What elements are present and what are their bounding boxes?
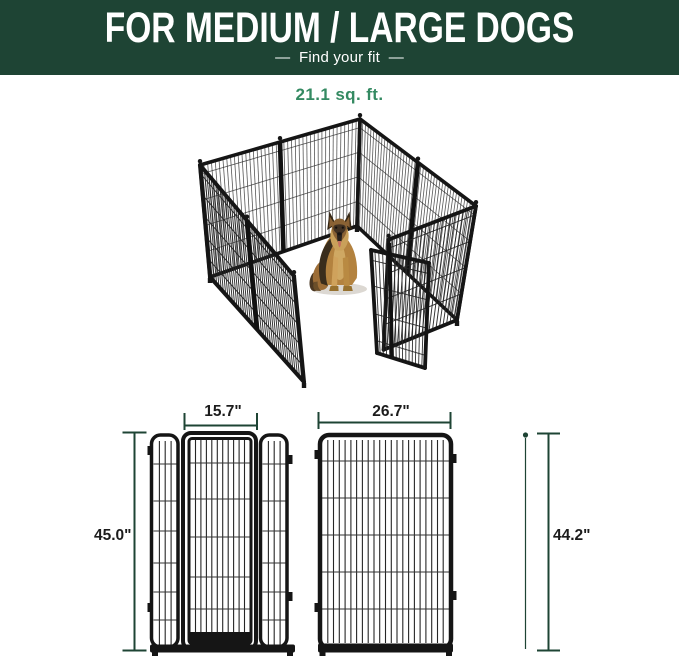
svg-text:26.7": 26.7" [372,403,410,420]
svg-text:45.0": 45.0" [94,527,132,544]
svg-text:15.7": 15.7" [204,403,242,420]
svg-text:44.2": 44.2" [553,527,591,544]
